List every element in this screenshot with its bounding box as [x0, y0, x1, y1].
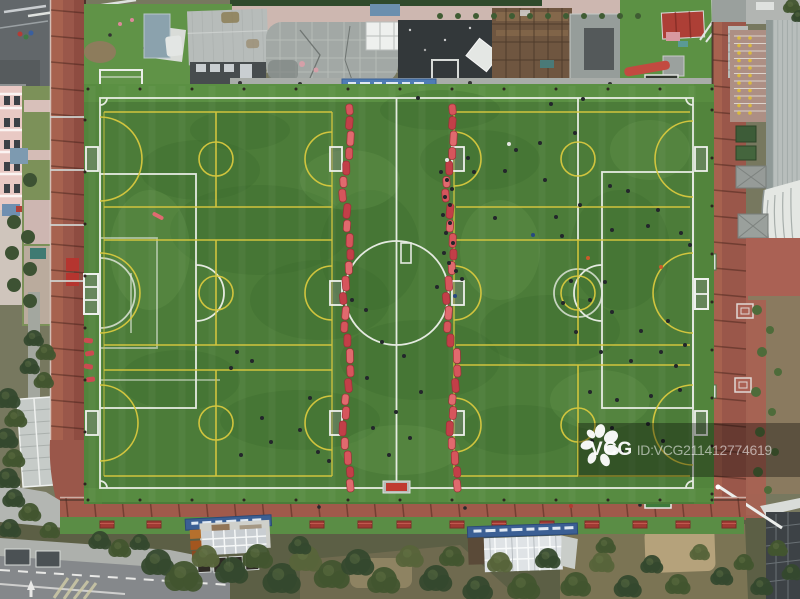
red-sign	[66, 258, 79, 271]
side-goal	[86, 147, 98, 171]
main-goal-right	[695, 279, 708, 309]
picnic-table	[736, 166, 766, 188]
dirt-patch	[84, 41, 116, 63]
side-goal	[695, 147, 707, 171]
metal-roof-building	[187, 9, 269, 66]
planter-box	[736, 126, 756, 142]
planter-box	[736, 146, 756, 160]
main-goal-left	[84, 274, 98, 314]
white-vehicle	[165, 35, 183, 57]
watermark-band: VCG ID:VCG211412774619	[578, 423, 800, 477]
red-sign	[66, 273, 79, 286]
barrier-goal	[330, 147, 342, 171]
pink-tarp	[666, 32, 680, 41]
parked-van	[30, 248, 46, 259]
scaffold-structure	[492, 8, 572, 78]
blue-tarp	[370, 4, 400, 16]
watermark-id-text: ID:VCG211412774619	[637, 442, 772, 458]
picnic-table	[738, 214, 768, 238]
vcg-flower-icon	[580, 423, 620, 469]
paving-pattern	[735, 378, 751, 392]
gabled-roof	[570, 14, 628, 80]
blue-awning	[10, 148, 28, 164]
black-flat-roof	[398, 20, 500, 82]
paving-pattern	[737, 304, 753, 318]
aerial-photo-football-complex: VCG ID:VCG211412774619	[0, 0, 800, 599]
side-goal	[86, 411, 98, 435]
barrier-goal	[452, 281, 464, 305]
blue-grey-structure	[144, 14, 170, 58]
red-path	[746, 300, 766, 518]
photo-canvas	[0, 0, 800, 599]
red-bench	[383, 481, 410, 493]
red-pavement	[746, 238, 800, 302]
bus-shelter	[5, 549, 30, 565]
sports-hall-roof	[766, 20, 800, 190]
top-strip	[84, 0, 730, 90]
bus-shelter	[36, 551, 60, 567]
